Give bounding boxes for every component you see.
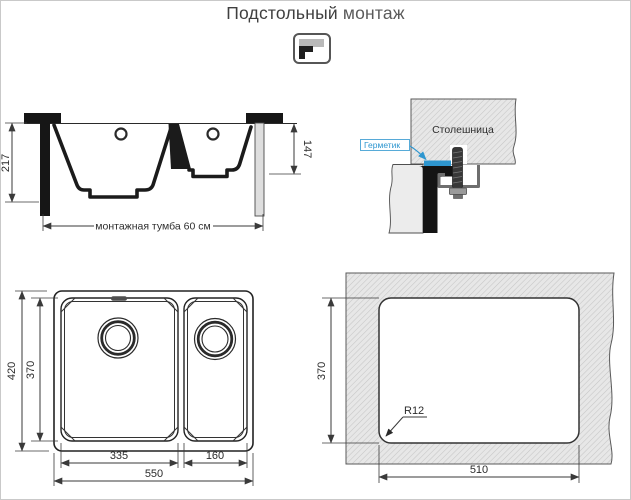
- dim-main-bowl-width: 335: [110, 450, 128, 462]
- cabinet-size-label: монтажная тумба 60 см: [95, 221, 210, 233]
- page: Подстольный монтаж: [0, 0, 631, 500]
- cutout-opening: [379, 298, 579, 443]
- overflow-notch: [111, 296, 127, 301]
- sink-top-view: 420 370 335 160 550: [1, 281, 273, 500]
- dim-cutout-width: 510: [470, 464, 488, 476]
- dim-outer-height: 420: [6, 362, 18, 380]
- threaded-stud: [453, 148, 463, 189]
- sealant-label: Герметик: [364, 140, 400, 150]
- page-title-secondary: монтаж: [343, 3, 405, 23]
- page-title: Подстольный монтаж: [1, 3, 630, 24]
- side-view-sink-profile: [54, 124, 251, 197]
- corner-radius-label: R12: [404, 405, 424, 417]
- overflow-hole-right: [208, 129, 219, 140]
- dim-cutout-height: 370: [316, 362, 328, 380]
- countertop-label: Столешница: [432, 124, 494, 136]
- dim-depth-small-bowl: 147: [301, 140, 313, 158]
- undermount-corner-icon: [293, 33, 331, 64]
- page-title-primary: Подстольный: [226, 3, 338, 23]
- detail-sink-body: [389, 165, 423, 234]
- sealant-strip: [424, 161, 451, 167]
- dim-outer-width: 550: [145, 468, 163, 480]
- dim-half-bowl-width: 160: [206, 450, 224, 462]
- top-view-outline: [54, 291, 253, 451]
- overflow-hole-left: [116, 129, 127, 140]
- side-section-view: 217 147 монтажная тумба 60 см: [1, 96, 316, 241]
- mounting-detail-view: Столешница Герметик: [356, 86, 631, 246]
- fastening-nut: [450, 188, 467, 199]
- dim-depth-total: 217: [0, 154, 12, 172]
- dim-bowl-height: 370: [25, 361, 37, 379]
- icon-sink-wall-leg: [299, 46, 305, 59]
- cutout-template-view: 370 510 R12: [319, 259, 631, 500]
